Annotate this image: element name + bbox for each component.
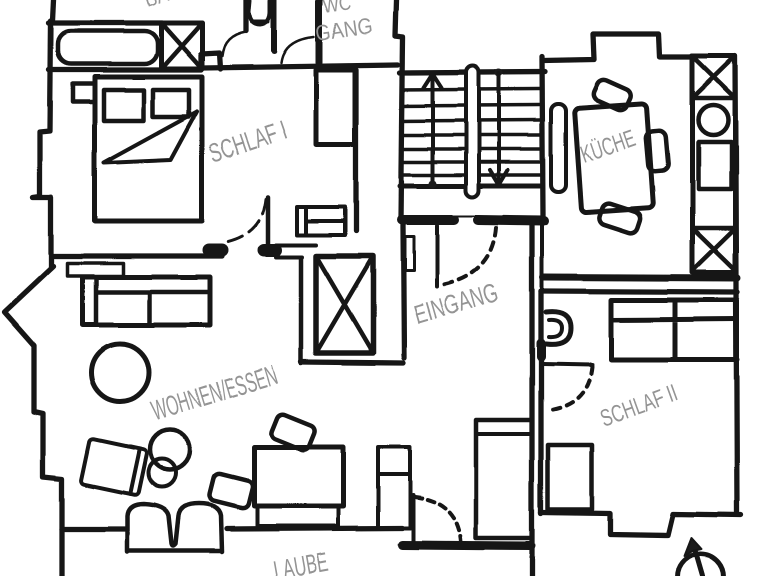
svg-text:EINGANG: EINGANG <box>410 277 501 330</box>
svg-text:BAD: BAD <box>142 0 183 12</box>
svg-text:WC: WC <box>322 0 353 18</box>
svg-text:SCHLAF II: SCHLAF II <box>597 380 681 433</box>
svg-text:SCHLAF I: SCHLAF I <box>205 114 290 168</box>
svg-text:LAUBE: LAUBE <box>271 547 330 576</box>
svg-text:GANG: GANG <box>314 13 374 46</box>
svg-text:KÜCHE: KÜCHE <box>577 125 639 169</box>
svg-text:WOHNEN/ESSEN: WOHNEN/ESSEN <box>148 359 281 427</box>
